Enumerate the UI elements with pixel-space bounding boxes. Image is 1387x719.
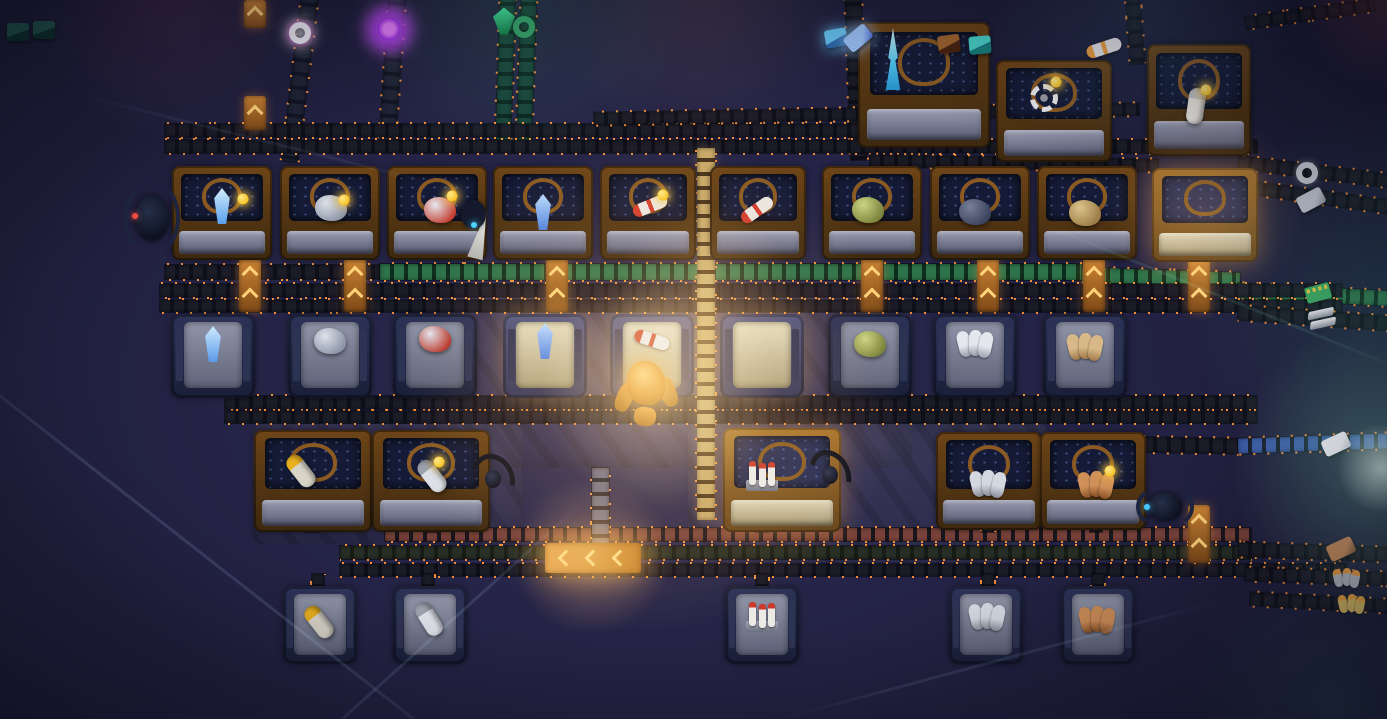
chevron-arrow-icon [347, 288, 364, 305]
belt-edge-lights [160, 282, 1342, 284]
chevron-arrow-icon [247, 105, 264, 122]
ammo-rounds-a-round [1349, 569, 1361, 588]
working-indicator-8 [1105, 466, 1116, 477]
chevron-arrow-icon [242, 266, 259, 283]
storage-row2-2[interactable] [288, 314, 372, 398]
chevron-arrow-icon [549, 288, 566, 305]
belt-edge-lights [340, 544, 1252, 546]
missile-set-1-icon [746, 461, 778, 491]
assembler-base-panel [867, 109, 981, 141]
belt-edge-lights [1238, 431, 1387, 438]
storage-bracket [938, 329, 945, 381]
belt-edge-lights [225, 423, 1257, 425]
splitter-mid-2[interactable] [344, 258, 366, 312]
storage-bracket [833, 329, 840, 381]
chevron-arrow-icon [1191, 288, 1208, 305]
turret-core [1148, 493, 1183, 521]
defense-turret-left[interactable] [124, 180, 180, 256]
assembler-base-panel [731, 500, 833, 526]
storage-bracket [1048, 329, 1055, 381]
storage-bracket [176, 329, 183, 381]
strange-matter-icon [376, 16, 402, 42]
missile-set-2-missile [759, 604, 766, 628]
chevron-arrow-icon [585, 550, 602, 567]
cargo-cube-a-icon [7, 23, 29, 41]
storage-bracket [1013, 600, 1019, 648]
belt-h-bottom-dark[interactable] [340, 564, 1346, 576]
working-indicator-5 [1051, 77, 1062, 88]
assembler-base-panel [179, 231, 265, 255]
chevron-arrow-icon [1086, 266, 1103, 283]
ammo-cluster-copper-2-icon [1079, 606, 1115, 634]
belt-h-lower-2[interactable] [225, 411, 1257, 423]
chevron-arrow-icon [1191, 537, 1208, 554]
belt-edge-lights [160, 298, 1342, 300]
glow-top-pink [30, 0, 310, 140]
green-lens-icon [513, 16, 535, 38]
storage-bracket [293, 329, 300, 381]
working-indicator-3 [447, 191, 458, 202]
storage-bracket [1065, 600, 1071, 648]
chevron-arrow-icon [980, 266, 997, 283]
chevron-arrow-icon [980, 288, 997, 305]
belt-h-mid-2[interactable] [160, 300, 1342, 312]
idle-drone[interactable] [458, 200, 502, 264]
storage-bracket [1005, 329, 1012, 381]
belt-edge-lights [1238, 540, 1387, 547]
assembler-base-panel [829, 231, 915, 255]
missile-set-2-icon [746, 602, 778, 632]
assembler-base-panel [380, 500, 482, 526]
chevron-arrow-icon [612, 550, 629, 567]
chevron-arrow-icon [247, 6, 264, 23]
belt-edge-lights [385, 541, 1251, 543]
ammo-rounds-b-round [1354, 595, 1366, 614]
dark-drone-icon [959, 199, 991, 225]
belt-edge-lights [1238, 448, 1387, 455]
splitter-mid-4[interactable] [861, 258, 883, 312]
rocket-cluster-tan-icon [1067, 333, 1103, 361]
steel-ring-icon [1296, 162, 1318, 184]
storage-bracket [508, 329, 515, 381]
tan-drone-1-icon [1069, 200, 1101, 226]
circuit-board-traces [1306, 284, 1327, 293]
belt-v-topright[interactable] [1126, 0, 1145, 64]
chevron-arrow-icon [864, 288, 881, 305]
rocket-cluster-white-icon [957, 330, 993, 358]
assembler-base-panel [1047, 500, 1138, 525]
assembler-base-panel [262, 500, 364, 526]
sorter-arm-left[interactable] [470, 450, 516, 506]
splitter-mid-5[interactable] [977, 258, 999, 312]
working-indicator-1 [238, 194, 249, 205]
belt-edge-lights [1245, 580, 1387, 587]
belt-blue-edge[interactable] [1238, 433, 1387, 453]
splitter-mid-3[interactable] [546, 258, 568, 312]
assembler-base-panel [607, 231, 690, 255]
working-indicator-7 [434, 457, 445, 468]
assembler-arch [1184, 180, 1226, 216]
ammo-rounds-b-icon [1339, 594, 1366, 614]
storage-bracket [287, 600, 293, 648]
storage-bracket [360, 329, 367, 381]
missile-set-1-missile [759, 463, 766, 487]
storage-bracket [1125, 600, 1131, 648]
belt-edge-lights [1082, 265, 1240, 273]
working-indicator-4 [658, 190, 669, 201]
missile-set-2-missile [749, 602, 756, 626]
missile-set-1-missile [749, 461, 756, 485]
splitter-mid-7[interactable] [1188, 258, 1210, 312]
ammo-cluster-silver-1-icon [970, 470, 1006, 498]
splitter-top-edge[interactable] [244, 0, 266, 28]
splitter-upper-1[interactable] [244, 96, 266, 130]
player-mecha[interactable] [616, 352, 676, 426]
turret-core [135, 195, 169, 241]
storage-bracket [457, 600, 463, 648]
assembler-base-panel [1044, 231, 1130, 255]
assembler-base-panel [500, 231, 586, 255]
chevron-arrow-icon [1191, 266, 1208, 283]
storage-bracket [900, 329, 907, 381]
belt-edge-lights [225, 409, 1257, 411]
belt-edge-lights [1139, 0, 1146, 63]
assembler-base-panel [1154, 121, 1243, 149]
assembler-base-panel [717, 231, 800, 255]
belt-topright-corner[interactable] [1245, 0, 1375, 29]
missile-set-2-missile [768, 603, 775, 627]
quantum-ring-icon [289, 22, 311, 44]
mecha-leg [633, 405, 657, 427]
white-drone-2-icon [314, 328, 346, 354]
assembler-base-panel [1004, 130, 1104, 156]
storage-bracket [465, 329, 472, 381]
chevron-arrow-icon [347, 266, 364, 283]
chevron-arrow-icon [558, 550, 575, 567]
storage-inner-panel [733, 322, 792, 388]
electric-motor-icon [937, 34, 961, 55]
splitter-mid-1[interactable] [239, 258, 261, 312]
chevron-arrow-icon [242, 288, 259, 305]
storage-bracket [789, 600, 795, 648]
assembler-base-panel [1159, 233, 1250, 257]
chevron-arrow-icon [1086, 288, 1103, 305]
assembler-base-panel [943, 500, 1034, 525]
working-indicator-6 [1201, 85, 1212, 96]
missile-set-1-missile [768, 462, 775, 486]
green-drone-1-icon [852, 197, 884, 223]
assembler-base-panel [287, 231, 373, 255]
ammo-rounds-a-icon [1334, 568, 1361, 588]
belt-edge-lights [340, 576, 1346, 578]
ammo-cluster-silver-2-icon [969, 603, 1005, 631]
sorter-hub [822, 466, 838, 484]
working-indicator-2 [339, 195, 350, 206]
assembler-base-panel [937, 231, 1023, 255]
redblack-drone-icon [419, 326, 451, 352]
storage-bracket [243, 329, 250, 381]
belt-ammo-edge-1[interactable] [1245, 567, 1387, 585]
belt-edge-lights [340, 559, 1252, 561]
cooling-unit-icon [968, 35, 991, 55]
storage-bracket [725, 329, 732, 381]
belt-edge-lights [1250, 605, 1387, 614]
storage-bracket [682, 329, 689, 381]
storage-bracket [397, 600, 403, 648]
storage-row2-6[interactable] [720, 314, 804, 398]
thruster-icon [1085, 36, 1123, 59]
chevron-arrow-icon [549, 266, 566, 283]
green-drone-2-icon [854, 331, 886, 357]
belt-h-mid-1[interactable] [160, 284, 1342, 297]
belt-ammo-edge-2[interactable] [1250, 592, 1387, 612]
gear-wheel-icon [1030, 84, 1058, 112]
assembler-top-gear[interactable] [996, 60, 1112, 162]
storage-bracket [953, 600, 959, 648]
belt-edge-lights [1124, 0, 1131, 65]
storage-bracket [347, 600, 353, 648]
splitter-bottom-bright[interactable] [545, 543, 641, 573]
belt-h-upper-1[interactable] [165, 124, 870, 137]
belt-copper-edge[interactable] [1238, 542, 1387, 561]
smelter-row1-10-lit[interactable] [1152, 168, 1258, 262]
storage-bracket [1115, 329, 1122, 381]
storage-bracket [398, 329, 405, 381]
sorter-hub-right[interactable] [1136, 484, 1194, 530]
storage-bracket [792, 329, 799, 381]
chevron-arrow-icon [864, 266, 881, 283]
mecha-body [627, 361, 665, 405]
splitter-mid-6[interactable] [1083, 258, 1105, 312]
game-viewport [0, 0, 1387, 719]
cargo-cube-b-icon [33, 21, 55, 39]
storage-bracket [575, 329, 582, 381]
drone-light [471, 222, 477, 228]
belt-h-bottom-green[interactable] [340, 546, 1252, 559]
sorter-arm-center[interactable] [808, 446, 852, 502]
belt-edge-lights [1250, 590, 1387, 599]
storage-bracket [729, 600, 735, 648]
